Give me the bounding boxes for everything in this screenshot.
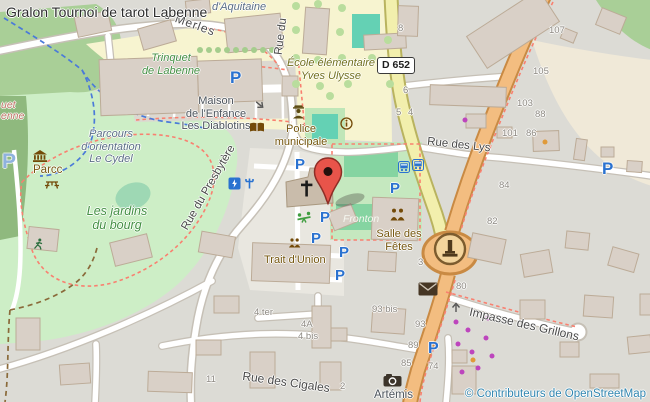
label-maison-enfance: Maison de l'Enfance Les Diablotins (177, 95, 255, 133)
house-number: 103 (517, 99, 533, 110)
label-salle-des-fetes: Salle des Fêtes (372, 228, 426, 253)
label-police: Police municipale (270, 123, 332, 148)
picnic-table-icon (44, 178, 60, 190)
house-number: 3 (418, 258, 423, 269)
playground-icon (296, 210, 312, 224)
house-number: 6 (403, 86, 408, 97)
house-number: 74 (428, 362, 439, 373)
label-trinquet: Trinquet de Labenne (138, 52, 204, 77)
label-ecole: École élémentaire Yves Ulysse (284, 57, 378, 82)
house-number: 8 (398, 24, 403, 35)
road-shield-d652: D 652 (377, 57, 415, 74)
parking-icon: P (311, 230, 321, 247)
house-number: 105 (533, 67, 549, 78)
attribution-link[interactable]: © Contributeurs de OpenStreetMap (465, 388, 646, 400)
house-number: 5 (396, 108, 401, 119)
house-number: 11 (206, 375, 216, 386)
parking-icon: P (390, 180, 400, 197)
house-number: 84 (499, 181, 510, 192)
community-people-icon (288, 238, 301, 248)
house-number: 101 (502, 129, 518, 140)
bus-stop-icon (412, 159, 424, 171)
runner-icon (31, 238, 45, 251)
info-icon (340, 117, 353, 130)
parking-icon: P (2, 150, 16, 174)
house-number: 4 (408, 108, 413, 119)
drinking-water-icon (243, 177, 256, 190)
house-number: 82 (487, 217, 498, 228)
house-number: 4 ter (254, 308, 273, 319)
monument-icon (433, 232, 467, 266)
community-people-icon (389, 208, 406, 221)
label-parcours: Parcours d'orientation Le Cydel (76, 128, 146, 166)
label-parcc: Parcc (33, 164, 62, 177)
house-number: 88 (535, 110, 546, 121)
church-cross-icon (300, 180, 313, 197)
label-fronton: Fronton (343, 213, 379, 225)
page-title: Gralon Tournoi de tarot Labenne (6, 4, 207, 20)
label-edge-fragment-2: enne (1, 110, 24, 122)
house-number: 2 (340, 382, 345, 393)
parking-icon: P (428, 340, 439, 358)
label-jardins: Les jardins du bourg (80, 204, 154, 233)
house-number: 89 (408, 341, 419, 352)
house-number: 4 bis (298, 332, 318, 343)
camera-icon (383, 374, 402, 388)
parking-icon: P (339, 244, 349, 261)
parking-icon: P (320, 209, 330, 226)
charging-station-icon (228, 177, 241, 190)
parking-icon: P (230, 68, 241, 88)
house-number: 4A (301, 320, 313, 331)
museum-icon (32, 149, 48, 163)
house-number: 80 (456, 282, 467, 293)
bus-stop-icon (398, 161, 410, 173)
label-artemis: Artémis (374, 389, 413, 402)
label-trait-d-union: Trait d'Union (264, 254, 326, 267)
parking-icon: P (602, 159, 613, 179)
marker-pin-icon[interactable] (313, 157, 371, 207)
label-aquitaine: d'Aquitaine (212, 1, 266, 14)
parking-icon: P (335, 267, 345, 284)
library-book-icon (249, 121, 265, 134)
house-number: 86 (526, 129, 537, 140)
police-officer-icon (290, 103, 307, 120)
house-number: 107 (549, 26, 565, 37)
map-canvas[interactable]: s Merles Rue du Rue du Presbytère Rue de… (0, 0, 650, 402)
house-number: 93 bis (372, 305, 397, 316)
post-box-icon (418, 282, 438, 296)
parking-icon: P (295, 156, 305, 173)
oneway-arrow-icon (451, 301, 461, 313)
house-number: 85 (401, 359, 412, 370)
house-number: 93 (415, 320, 426, 331)
